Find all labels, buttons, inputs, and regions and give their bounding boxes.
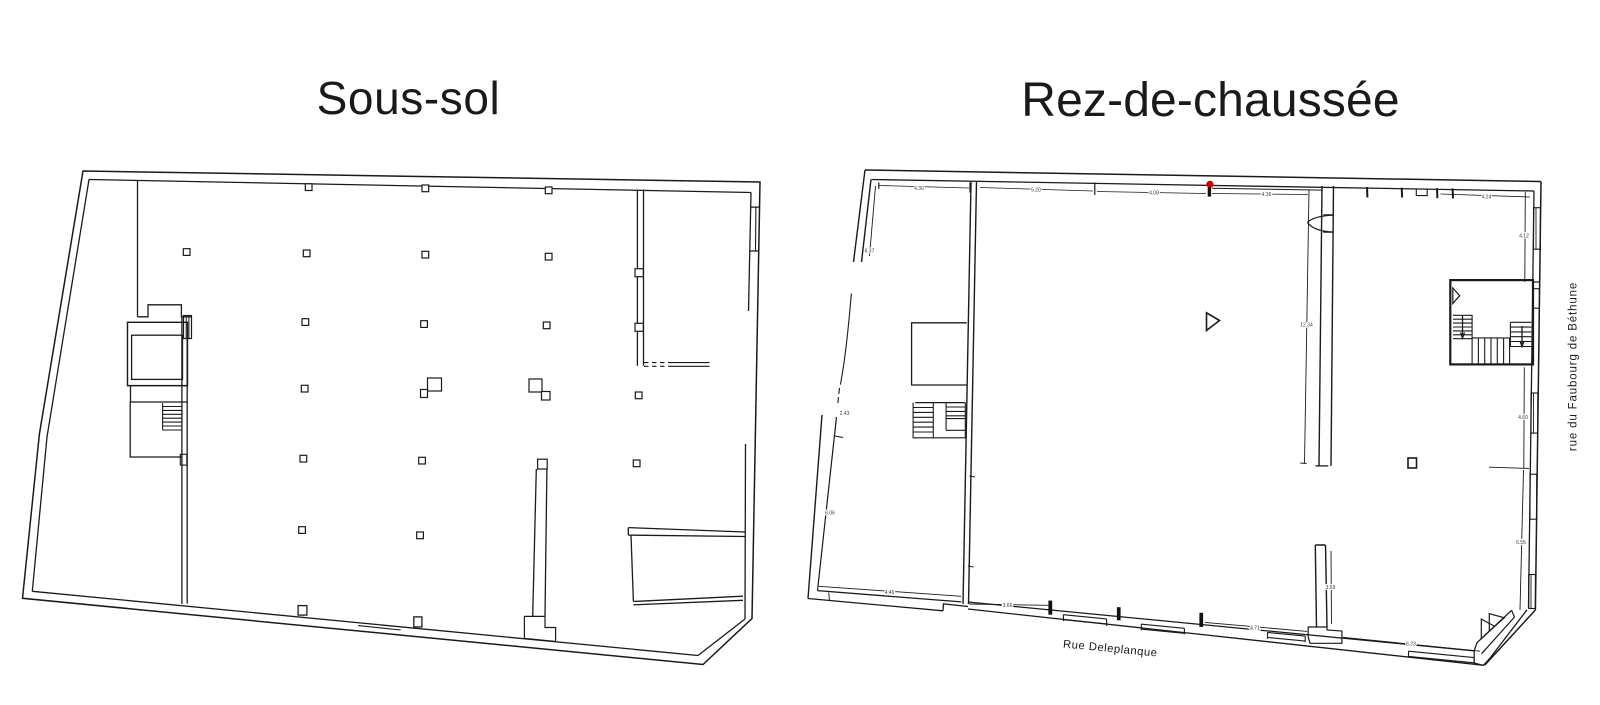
svg-text:2.43: 2.43 (840, 411, 850, 417)
svg-text:5.20: 5.20 (1031, 188, 1041, 194)
svg-text:3.59: 3.59 (1326, 585, 1336, 591)
svg-text:Rez-de-chaussée: Rez-de-chaussée (1021, 74, 1399, 127)
svg-text:rue du Faubourg de Béthune: rue du Faubourg de Béthune (1568, 282, 1580, 451)
svg-text:4.60: 4.60 (1518, 415, 1528, 421)
svg-text:4.08: 4.08 (1149, 191, 1159, 197)
svg-text:12.34: 12.34 (1300, 323, 1313, 329)
svg-text:4.30: 4.30 (914, 186, 924, 192)
svg-text:6.23: 6.23 (1406, 642, 1416, 648)
svg-text:6.55: 6.55 (1516, 540, 1526, 546)
svg-text:4.24: 4.24 (1482, 195, 1492, 201)
svg-text:Sous-sol: Sous-sol (317, 72, 501, 124)
svg-text:4.36: 4.36 (1262, 192, 1272, 198)
svg-text:4.46: 4.46 (885, 590, 895, 596)
svg-text:6.06: 6.06 (825, 511, 835, 517)
svg-text:4.71: 4.71 (1250, 626, 1260, 632)
svg-text:6.37: 6.37 (865, 249, 875, 255)
svg-text:3.66: 3.66 (1003, 603, 1013, 609)
svg-text:4.12: 4.12 (1519, 234, 1529, 240)
